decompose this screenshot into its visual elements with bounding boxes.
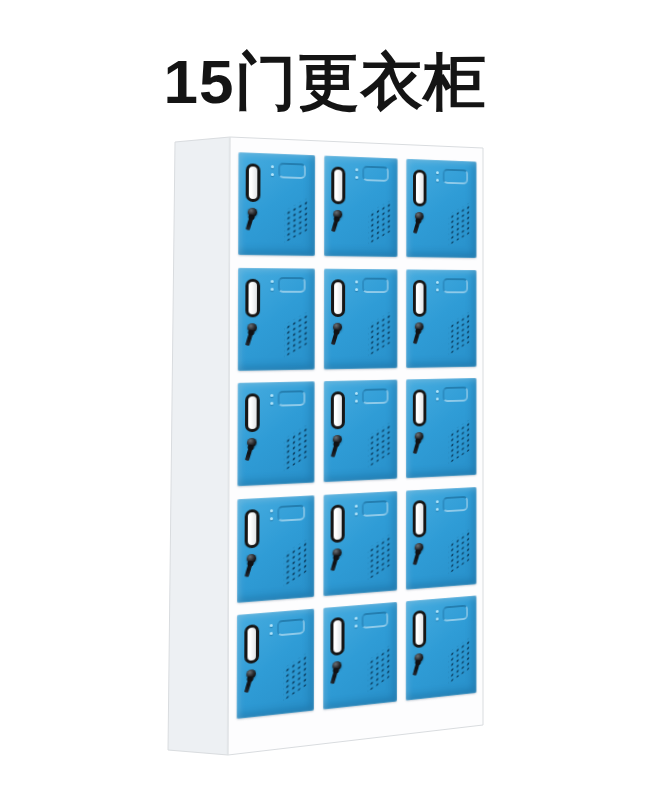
lock-cylinder	[415, 432, 424, 441]
locker-door	[324, 380, 398, 483]
lock-cylinder	[415, 212, 424, 221]
name-card-slot	[331, 279, 345, 317]
vent-holes	[448, 637, 471, 684]
locker-door	[238, 267, 315, 370]
lock-cylinder	[415, 653, 424, 662]
recessed-handle-icon	[278, 390, 306, 406]
key-icon	[413, 219, 421, 234]
handle-notch	[355, 168, 358, 179]
handle-notch	[271, 279, 274, 290]
handle-notch	[436, 500, 439, 511]
key-icon	[244, 677, 252, 693]
locker-door	[323, 602, 397, 710]
key-icon	[413, 550, 421, 565]
name-card-slot	[413, 279, 426, 316]
handle-notch	[355, 280, 358, 291]
key-icon	[413, 329, 421, 344]
locker-door	[406, 595, 477, 700]
recessed-handle-icon	[362, 611, 389, 629]
locker-door	[323, 491, 397, 596]
recessed-handle-icon	[362, 388, 389, 404]
recessed-handle-icon	[362, 277, 389, 292]
name-card-slot	[246, 163, 261, 202]
key-icon	[244, 561, 252, 576]
handle-notch	[355, 392, 358, 403]
recessed-handle-icon	[443, 278, 468, 293]
locker-door	[406, 487, 477, 590]
handle-notch	[436, 171, 439, 181]
lock-cylinder	[333, 210, 342, 219]
recessed-handle-icon	[443, 386, 468, 402]
locker-door	[406, 159, 476, 258]
recessed-handle-icon	[278, 163, 306, 180]
key-icon	[331, 442, 339, 457]
name-card-slot	[244, 624, 259, 664]
lock-cylinder	[333, 548, 342, 557]
locker-door	[406, 378, 476, 478]
name-card-slot	[330, 617, 344, 656]
vent-holes	[283, 652, 308, 701]
vent-holes	[448, 419, 471, 464]
key-icon	[330, 555, 338, 570]
lock-cylinder	[248, 208, 257, 217]
name-card-slot	[413, 169, 426, 206]
vent-holes	[284, 197, 309, 243]
handle-notch	[270, 509, 273, 520]
handle-notch	[436, 390, 439, 400]
lock-cylinder	[246, 669, 256, 679]
cabinet-side-panel	[168, 137, 230, 755]
key-icon	[246, 215, 254, 230]
key-icon	[330, 669, 338, 684]
handle-notch	[271, 165, 274, 176]
key-icon	[413, 661, 421, 676]
recessed-handle-icon	[362, 500, 389, 517]
lock-cylinder	[247, 438, 257, 447]
recessed-handle-icon	[277, 504, 305, 521]
vent-holes	[448, 310, 471, 354]
locker-door	[406, 269, 476, 368]
handle-notch	[270, 624, 273, 635]
lock-cylinder	[415, 322, 424, 331]
recessed-handle-icon	[443, 495, 469, 511]
key-icon	[245, 330, 253, 345]
key-icon	[413, 439, 421, 454]
vent-holes	[284, 311, 309, 358]
name-card-slot	[413, 500, 427, 538]
key-icon	[245, 445, 253, 460]
handle-notch	[436, 280, 439, 290]
name-card-slot	[331, 166, 345, 204]
key-icon	[331, 330, 339, 345]
handle-notch	[270, 394, 273, 405]
lock-cylinder	[333, 322, 342, 331]
vent-holes	[448, 202, 471, 246]
door-grid	[228, 137, 483, 755]
vent-holes	[283, 538, 308, 586]
locker-door	[237, 381, 314, 486]
locker-door	[238, 152, 315, 256]
vent-holes	[367, 644, 391, 692]
vent-holes	[448, 528, 471, 574]
lock-cylinder	[333, 435, 342, 444]
vent-holes	[368, 200, 392, 245]
vent-holes	[284, 424, 309, 471]
handle-notch	[436, 610, 439, 621]
recessed-handle-icon	[443, 169, 468, 185]
lock-cylinder	[247, 323, 256, 332]
handle-notch	[355, 617, 358, 628]
locker-door	[237, 495, 314, 603]
key-icon	[331, 217, 339, 232]
recessed-handle-icon	[277, 618, 305, 636]
recessed-handle-icon	[362, 166, 389, 182]
name-card-slot	[413, 610, 427, 648]
recessed-handle-icon	[278, 277, 306, 293]
vent-holes	[368, 310, 392, 355]
name-card-slot	[331, 504, 345, 543]
lock-cylinder	[332, 661, 341, 671]
lock-cylinder	[247, 553, 257, 563]
locker-door	[237, 609, 315, 719]
name-card-slot	[245, 393, 260, 432]
vent-holes	[368, 421, 392, 467]
vent-holes	[368, 533, 392, 580]
name-card-slot	[331, 391, 345, 429]
name-card-slot	[245, 278, 260, 317]
product-image: 15门更衣柜	[0, 0, 650, 790]
lock-cylinder	[415, 542, 424, 551]
recessed-handle-icon	[442, 605, 468, 622]
name-card-slot	[245, 508, 260, 548]
name-card-slot	[413, 389, 427, 426]
handle-notch	[355, 504, 358, 515]
locker-door	[324, 268, 398, 369]
locker-door	[324, 156, 398, 257]
